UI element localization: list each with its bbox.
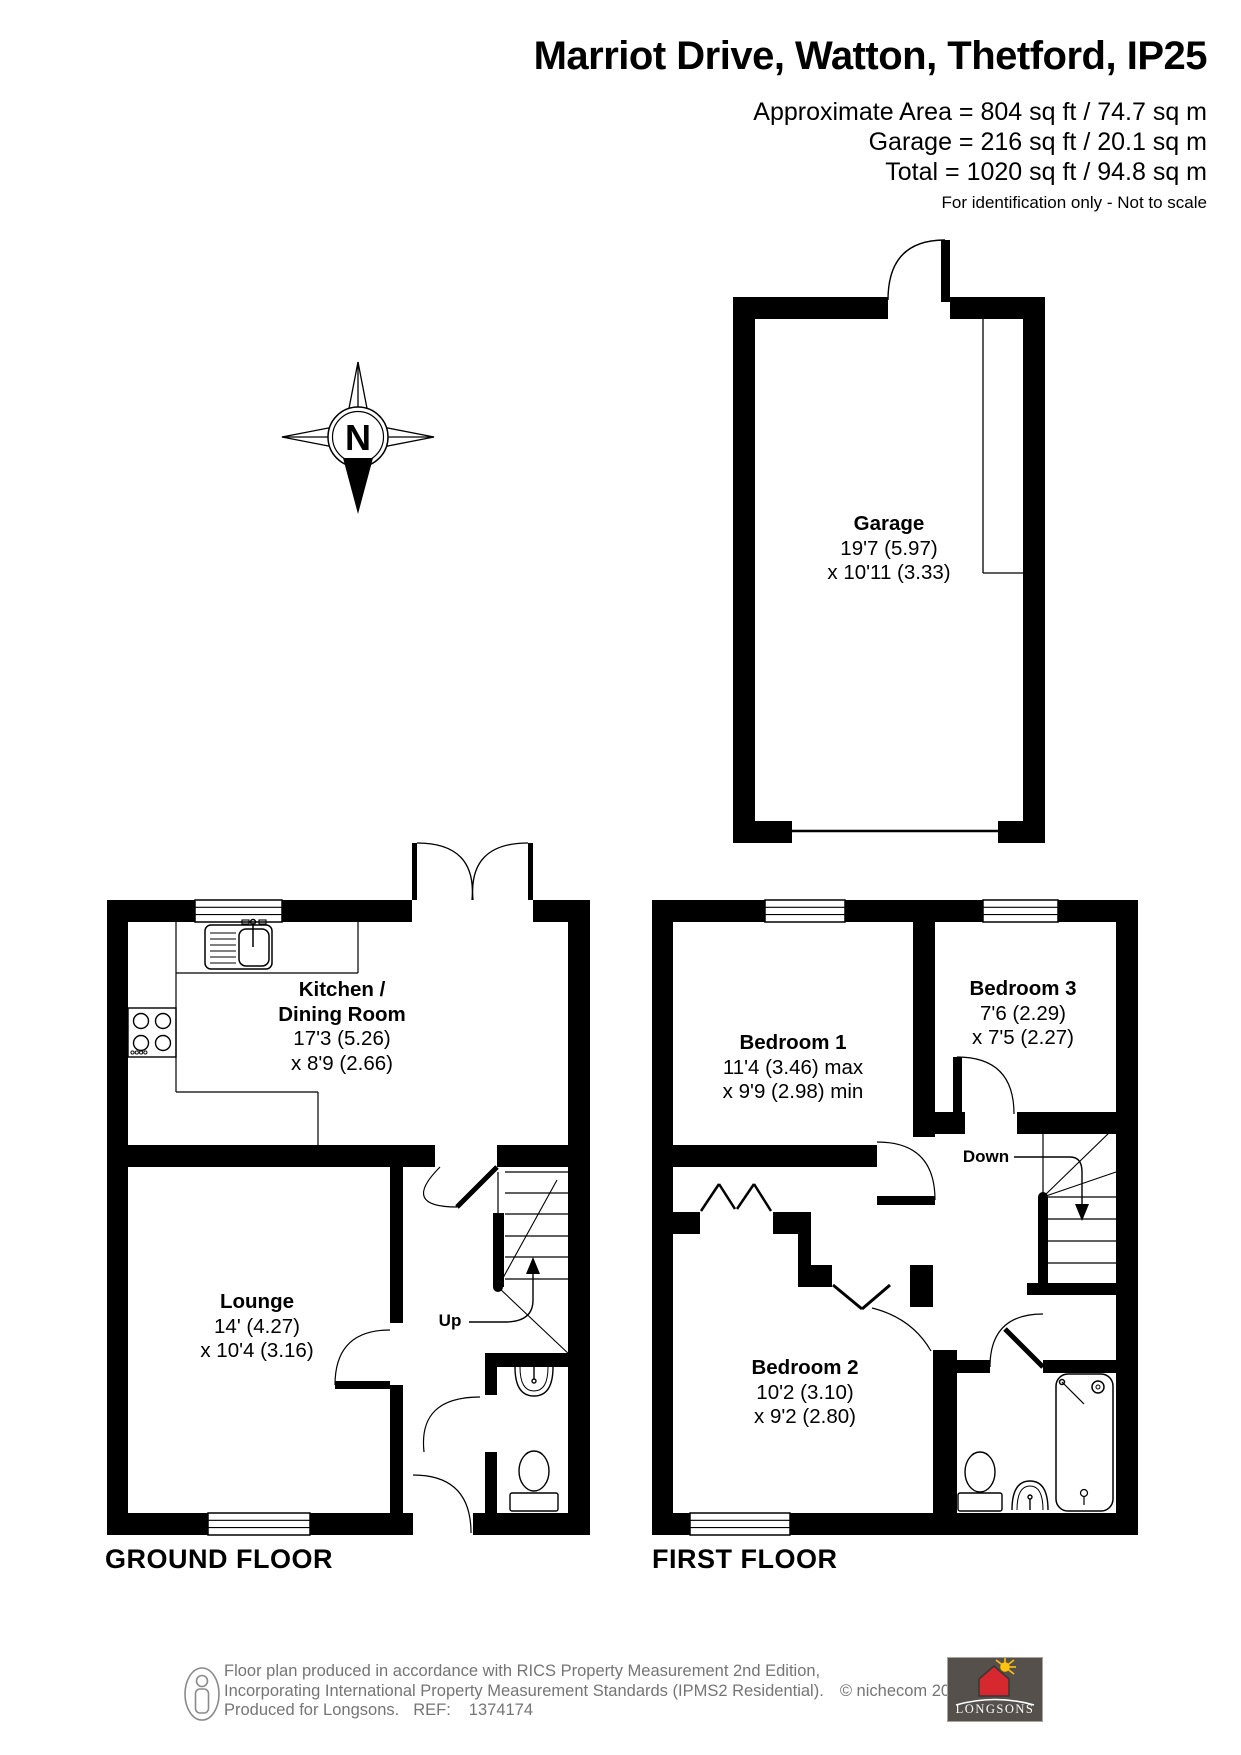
person-scale-icon — [180, 1664, 226, 1724]
footer-line1: Floor plan produced in accordance with R… — [224, 1662, 973, 1682]
stairs-down — [1014, 1130, 1116, 1283]
longsons-logo-text: LONGSONS — [948, 1702, 1042, 1717]
stairs-down-label: Down — [963, 1147, 1009, 1167]
wc-toilet-icon — [510, 1451, 558, 1511]
kitchen-sink-icon — [205, 920, 272, 970]
window — [690, 1513, 790, 1535]
kitchen-hall-door — [424, 1167, 497, 1207]
hob-icon — [128, 1008, 176, 1057]
stairs-up — [469, 1172, 572, 1357]
window — [765, 900, 845, 922]
compass-rose-icon: N — [282, 362, 434, 514]
wardrobe-bifold-doors — [701, 1184, 771, 1211]
first-floor-label: FIRST FLOOR — [652, 1544, 837, 1575]
footer-ref-label: REF: — [413, 1701, 451, 1719]
room-label-bedroom2: Bedroom 2 10'2 (3.10) x 9'2 (2.80) — [751, 1356, 858, 1430]
floor-plan-canvas: N — [0, 0, 1241, 1755]
bathroom-door — [990, 1314, 1043, 1367]
french-doors — [412, 843, 533, 900]
bedroom1-door — [877, 1142, 935, 1205]
room-label-kitchen: Kitchen / Dining Room 17'3 (5.26) x 8'9 … — [278, 978, 406, 1076]
ground-floor-label: GROUND FLOOR — [105, 1544, 333, 1575]
lounge-door — [335, 1330, 390, 1389]
room-label-garage: Garage 19'7 (5.97) x 10'11 (3.33) — [827, 512, 950, 586]
footer-line2: Incorporating International Property Mea… — [224, 1682, 824, 1700]
footer-text: Floor plan produced in accordance with R… — [224, 1662, 973, 1721]
window — [983, 900, 1058, 922]
footer-line3: Produced for Longsons. — [224, 1701, 399, 1719]
room-label-bedroom3: Bedroom 3 7'6 (2.29) x 7'5 (2.27) — [969, 977, 1076, 1051]
bathtub-icon — [1056, 1374, 1113, 1511]
bathroom-toilet-icon — [958, 1452, 1002, 1511]
room-label-lounge: Lounge 14' (4.27) x 10'4 (3.16) — [200, 1290, 313, 1364]
window — [208, 1513, 310, 1535]
up-arrow-icon — [526, 1257, 540, 1274]
garage-wall-recess — [983, 319, 1023, 573]
footer-ref-value: 1374174 — [469, 1701, 533, 1719]
wc-sink-icon — [515, 1367, 553, 1396]
front-door-arc — [413, 1475, 471, 1533]
room-label-bedroom1: Bedroom 1 11'4 (3.46) max x 9'9 (2.98) m… — [723, 1031, 864, 1105]
bathroom-sink-icon — [1012, 1481, 1048, 1510]
garage-pedestrian-door — [888, 240, 950, 302]
longsons-logo: LONGSONS — [947, 1657, 1043, 1722]
window — [195, 900, 282, 922]
bedroom3-door — [953, 1057, 1014, 1114]
stairs-up-label: Up — [439, 1311, 462, 1331]
ground-floor-plan — [107, 843, 590, 1535]
wc-door-arc — [423, 1397, 480, 1452]
compass-north-letter: N — [345, 417, 371, 458]
